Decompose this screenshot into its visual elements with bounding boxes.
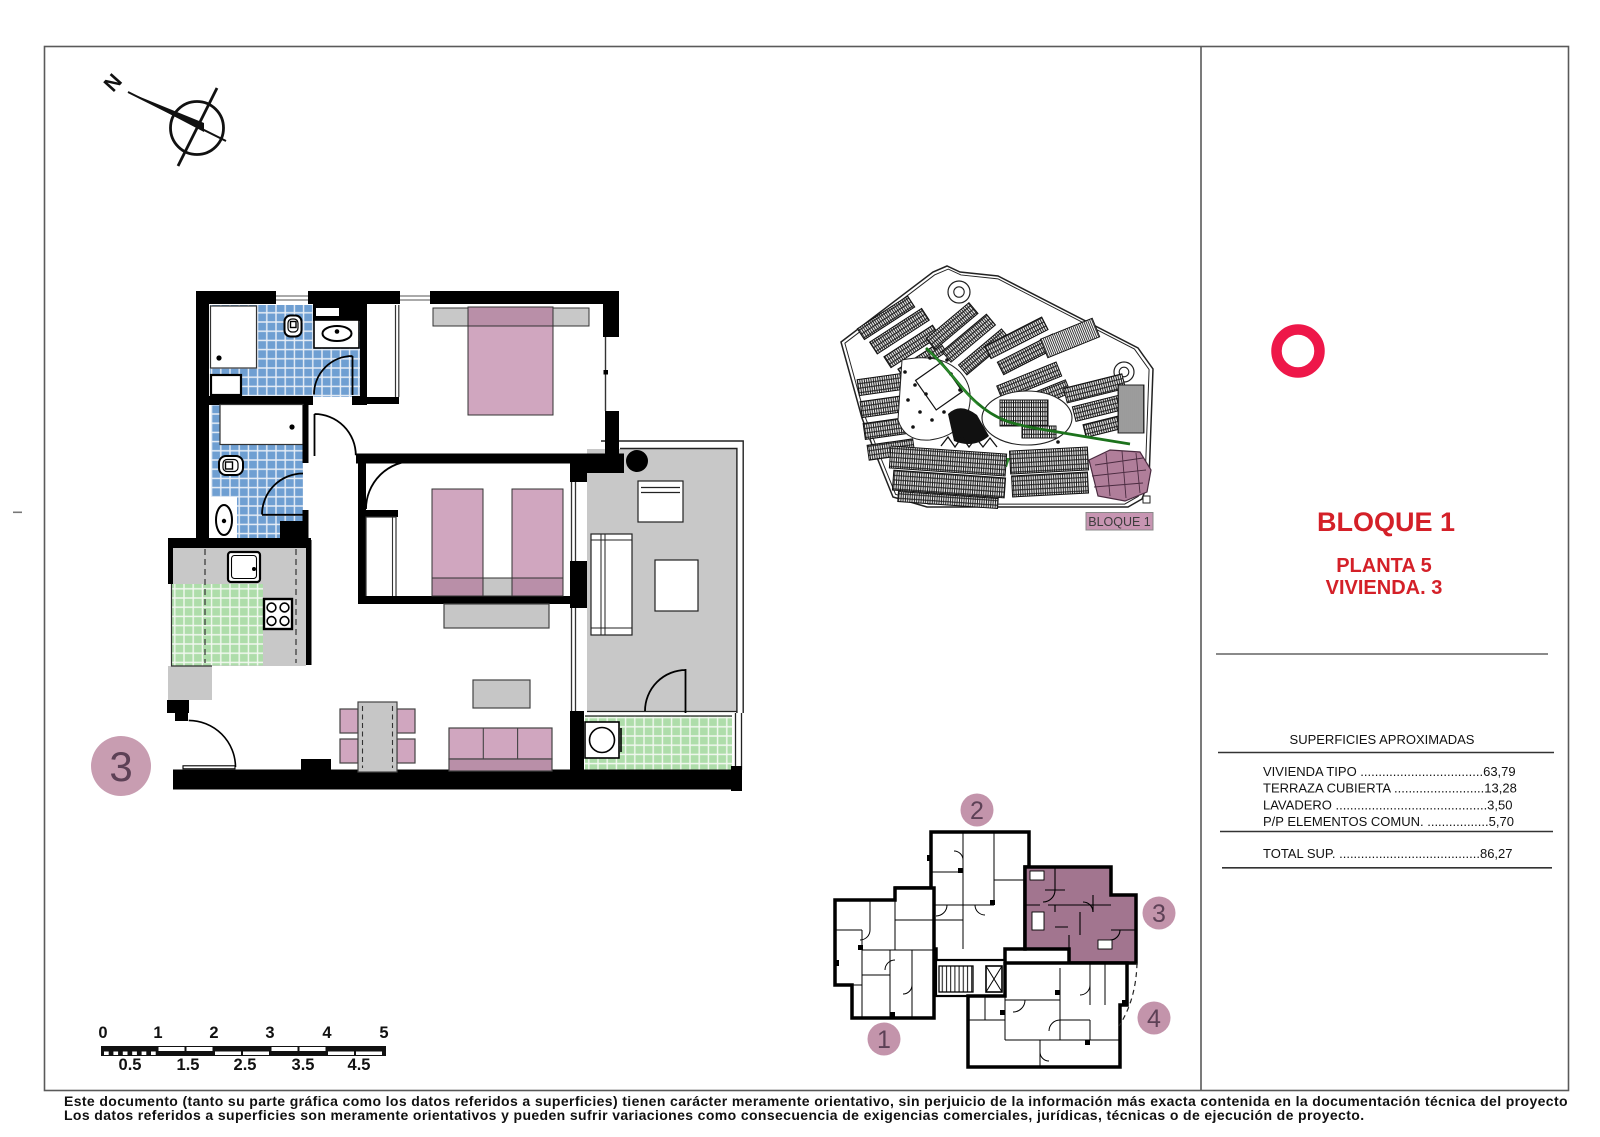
svg-text:2.5: 2.5	[234, 1056, 257, 1074]
svg-text:TERRAZA CUBIERTA .............: TERRAZA CUBIERTA .......................…	[1263, 781, 1517, 796]
svg-text:BLOQUE 1: BLOQUE 1	[1317, 507, 1455, 537]
svg-text:3: 3	[109, 743, 132, 790]
svg-text:TOTAL SUP. ...................: TOTAL SUP. .............................…	[1263, 846, 1513, 861]
svg-text:VIVIENDA. 3: VIVIENDA. 3	[1326, 577, 1443, 599]
svg-text:P/P ELEMENTOS COMUN. .........: P/P ELEMENTOS COMUN. .................5,…	[1263, 814, 1514, 829]
svg-text:4: 4	[322, 1024, 332, 1042]
svg-text:1: 1	[877, 1026, 891, 1054]
svg-text:PLANTA 5: PLANTA 5	[1336, 555, 1432, 577]
svg-text:5: 5	[379, 1024, 388, 1042]
svg-text:BLOQUE 1: BLOQUE 1	[1088, 515, 1151, 529]
svg-text:VIVIENDA TIPO ................: VIVIENDA TIPO ..........................…	[1263, 764, 1516, 779]
svg-text:Los datos referidos a superfic: Los datos referidos a superficies son me…	[64, 1107, 1364, 1123]
svg-text:0.5: 0.5	[119, 1056, 142, 1074]
svg-text:3: 3	[1152, 900, 1166, 928]
svg-text:1.5: 1.5	[177, 1056, 200, 1074]
svg-text:2: 2	[209, 1024, 218, 1042]
svg-text:4: 4	[1147, 1005, 1161, 1033]
svg-text:4.5: 4.5	[348, 1056, 371, 1074]
svg-text:SUPERFICIES APROXIMADAS: SUPERFICIES APROXIMADAS	[1290, 732, 1475, 747]
svg-text:1: 1	[153, 1024, 162, 1042]
svg-text:LAVADERO .....................: LAVADERO ...............................…	[1263, 798, 1512, 813]
svg-text:3.5: 3.5	[292, 1056, 315, 1074]
svg-text:3: 3	[265, 1024, 274, 1042]
svg-text:2: 2	[970, 797, 984, 825]
svg-text:0: 0	[98, 1024, 107, 1042]
